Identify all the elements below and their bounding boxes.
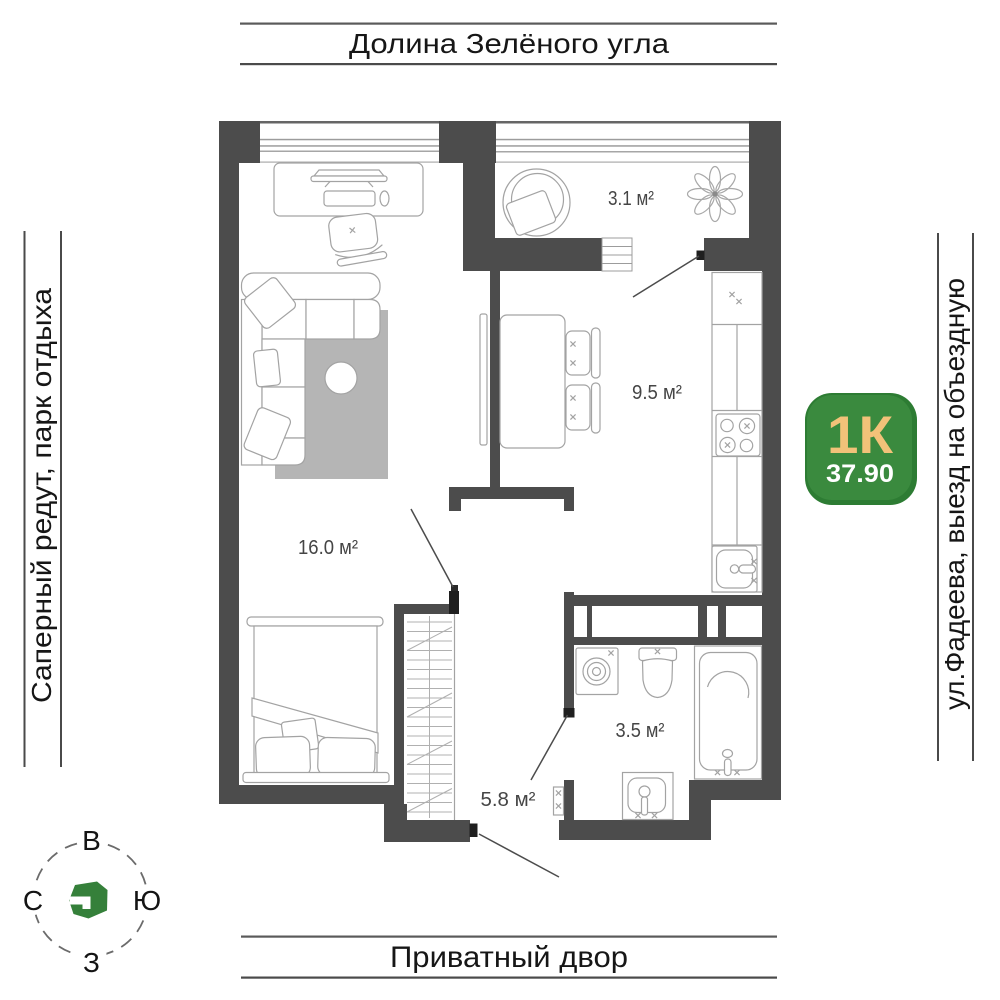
- svg-text:З: З: [83, 947, 100, 978]
- svg-text:С: С: [23, 885, 43, 916]
- svg-text:9.5 м²: 9.5 м²: [632, 382, 682, 404]
- svg-text:37.90: 37.90: [826, 460, 894, 488]
- svg-text:3.5 м²: 3.5 м²: [616, 720, 665, 742]
- svg-text:В: В: [82, 825, 101, 856]
- svg-text:1К: 1К: [827, 406, 894, 465]
- svg-text:Приватный двор: Приватный двор: [390, 941, 628, 974]
- svg-text:3.1 м²: 3.1 м²: [608, 188, 654, 210]
- svg-text:Саперный редут, парк отдыха: Саперный редут, парк отдыха: [26, 288, 57, 703]
- svg-text:Долина Зелёного угла: Долина Зелёного угла: [349, 28, 669, 59]
- svg-text:ул.Фадеева, выезд на объездную: ул.Фадеева, выезд на объездную: [939, 278, 970, 710]
- svg-text:Ю: Ю: [133, 885, 161, 916]
- svg-text:5.8 м²: 5.8 м²: [481, 789, 536, 811]
- svg-text:16.0 м²: 16.0 м²: [298, 537, 358, 559]
